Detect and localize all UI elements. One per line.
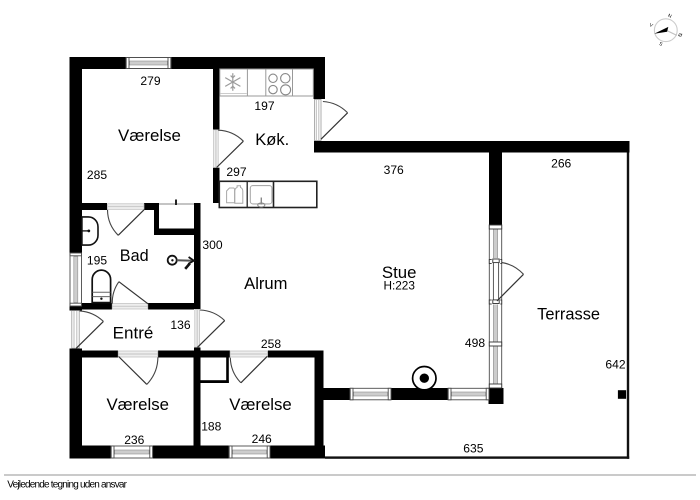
svg-text:246: 246 <box>252 432 272 446</box>
svg-text:Værelse: Værelse <box>118 126 181 145</box>
svg-text:258: 258 <box>261 337 281 351</box>
svg-text:Værelse: Værelse <box>229 395 292 414</box>
svg-text:Værelse: Værelse <box>106 395 169 414</box>
svg-text:188: 188 <box>201 420 221 434</box>
svg-text:Entré: Entré <box>113 324 154 343</box>
svg-text:Bad: Bad <box>120 247 149 265</box>
svg-text:300: 300 <box>202 238 222 252</box>
svg-text:Køk.: Køk. <box>255 131 289 149</box>
svg-text:Terrasse: Terrasse <box>537 305 600 323</box>
svg-text:195: 195 <box>87 254 107 268</box>
svg-text:642: 642 <box>605 358 625 372</box>
svg-text:279: 279 <box>140 74 160 88</box>
svg-text:H:223: H:223 <box>383 278 415 292</box>
svg-text:297: 297 <box>226 165 246 179</box>
svg-text:635: 635 <box>463 441 483 455</box>
svg-text:376: 376 <box>384 163 404 177</box>
svg-text:197: 197 <box>254 99 274 113</box>
svg-text:Alrum: Alrum <box>244 274 287 293</box>
svg-text:285: 285 <box>87 168 107 182</box>
svg-text:Vejledende tegning uden ansvar: Vejledende tegning uden ansvar <box>7 480 127 491</box>
svg-text:266: 266 <box>551 157 571 171</box>
svg-text:498: 498 <box>465 336 485 350</box>
svg-text:236: 236 <box>124 433 144 447</box>
svg-text:136: 136 <box>170 318 190 332</box>
